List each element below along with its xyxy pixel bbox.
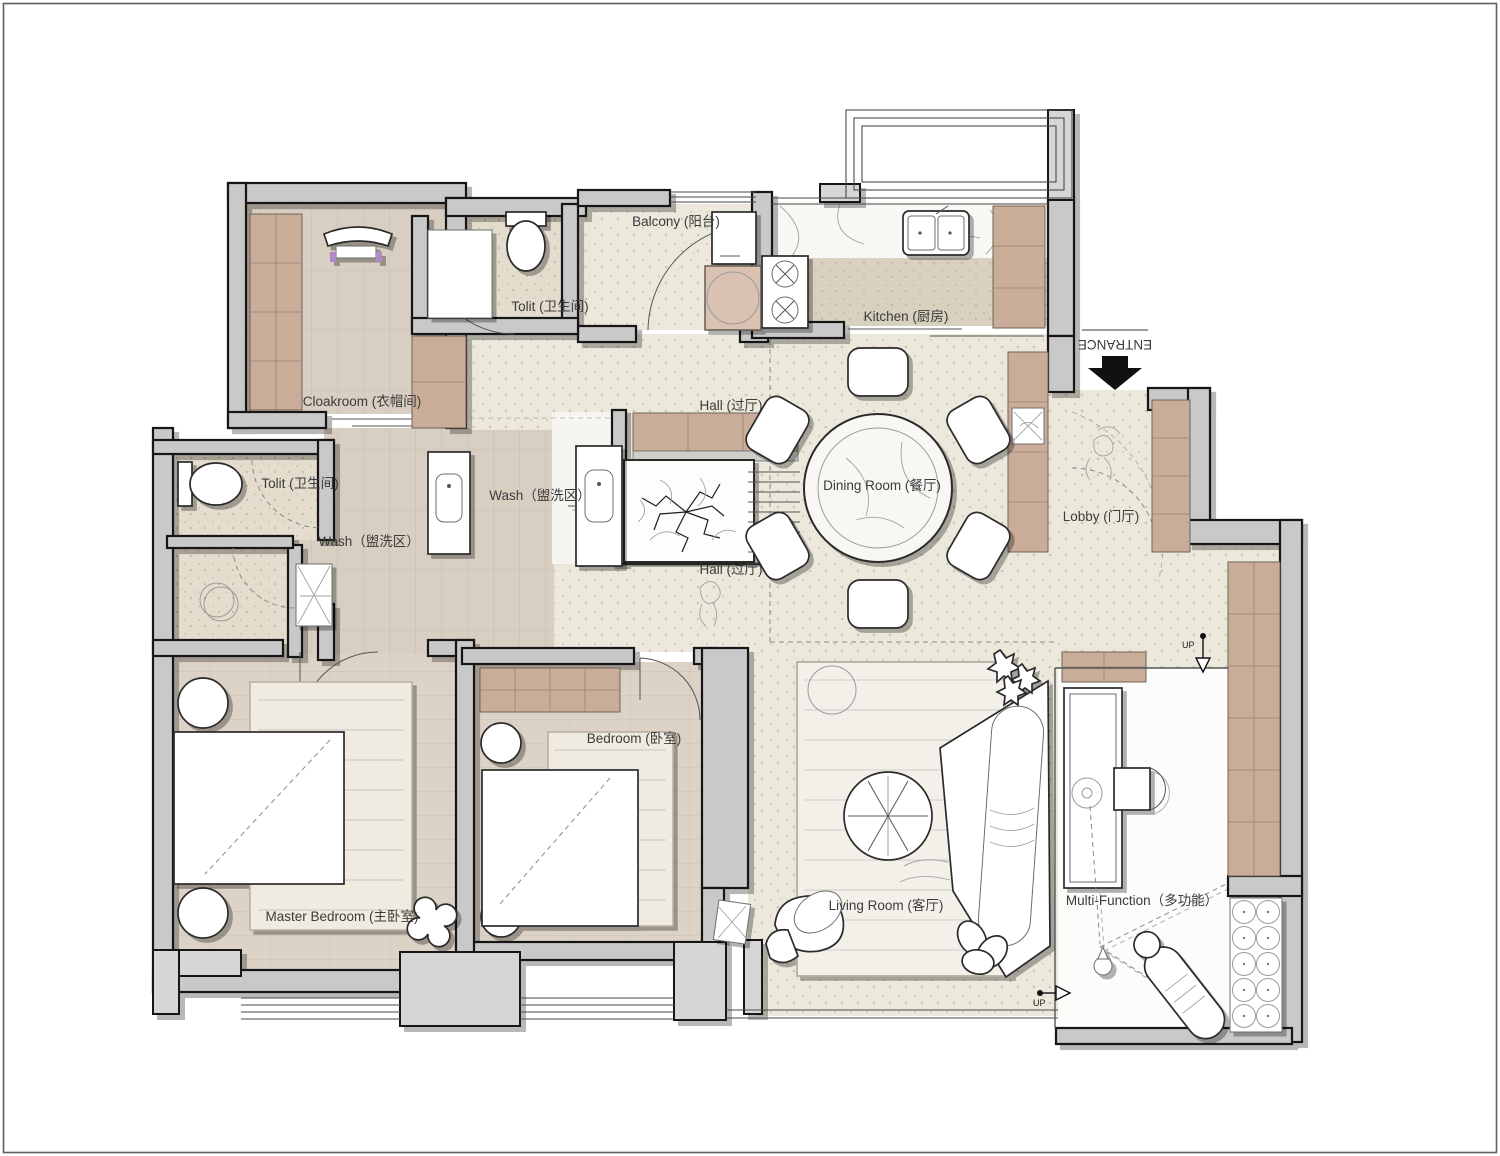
living-room-set — [766, 650, 1050, 977]
master-bed — [174, 732, 344, 884]
bedroom-bed — [482, 770, 638, 926]
lobby-shoe-cabinet — [1152, 400, 1190, 552]
wash-left-vanity — [428, 452, 470, 554]
enclosed-balcony-glazing — [846, 110, 1072, 198]
floor-plan-drawing: ENTRANCE UP UP Balcony (阳台) Tolit (卫生间) … — [0, 0, 1500, 1156]
tolit-left-label: Tolit (卫生间) — [261, 476, 338, 491]
wash-left-label: Wash（盥洗区） — [318, 534, 420, 549]
hall-cabinet-upper — [412, 336, 466, 428]
tolit-top-toilet — [506, 212, 546, 271]
balcony-window — [670, 192, 756, 202]
wash-center-label: Wash（盥洗区） — [489, 488, 591, 503]
cloakroom-wardrobe — [250, 214, 302, 410]
dining-chair — [848, 348, 908, 396]
up-top-label: UP — [1182, 640, 1195, 650]
wash-center-vanity — [568, 446, 622, 566]
floor-plan-page: ENTRANCE UP UP Balcony (阳台) Tolit (卫生间) … — [0, 0, 1500, 1156]
dining-room-label: Dining Room (餐厅) — [823, 478, 941, 493]
entrance-label: ENTRANCE — [1078, 337, 1152, 352]
tolit-left-toilet — [178, 462, 242, 506]
wine-rack — [1230, 898, 1282, 1032]
tolit-top-label: Tolit (卫生间) — [511, 299, 588, 314]
nightstand — [178, 888, 228, 938]
entrance-arrow — [1088, 356, 1142, 390]
living-room-label: Living Room (客厅) — [829, 897, 944, 913]
right-storage-cabinet — [1228, 562, 1280, 876]
entrance-marker: ENTRANCE — [1078, 330, 1152, 390]
shower-floor — [173, 548, 291, 654]
dining-side-cabinet — [1008, 352, 1048, 552]
multi-function-label: Multi-Function（多功能） — [1066, 892, 1218, 908]
wash-center-floor — [468, 430, 554, 660]
balcony-label: Balcony (阳台) — [632, 214, 720, 229]
bay-window-master — [241, 998, 400, 1019]
hall-lower-label: Hall (过厅) — [700, 562, 763, 577]
cloakroom-label: Cloakroom (衣帽间) — [303, 394, 422, 409]
master-bedroom-label: Master Bedroom (主卧室) — [265, 908, 418, 924]
wall-mirror — [713, 900, 750, 944]
washing-machine — [705, 266, 761, 330]
kitchen-label: Kitchen (厨房) — [864, 309, 949, 324]
kitchen-sink — [903, 206, 969, 255]
multi-function-wall-cabinet — [1062, 652, 1146, 682]
bedroom-label: Bedroom (卧室) — [587, 730, 682, 746]
bedroom-wardrobe — [480, 668, 620, 712]
coffee-table — [844, 772, 932, 860]
nightstand — [178, 678, 228, 728]
kitchen-tall-cabinet — [993, 206, 1045, 328]
kitchen-stove — [762, 256, 808, 328]
dining-chair — [848, 580, 908, 628]
up-bottom-label: UP — [1033, 998, 1046, 1008]
bay-window-bedroom — [520, 998, 674, 1019]
wash-left-mirror — [296, 564, 332, 626]
hall-upper-label: Hall (过厅) — [700, 398, 763, 413]
tolit-top-shower — [428, 230, 492, 318]
nightstand — [481, 723, 521, 763]
lobby-label: Lobby (门厅) — [1063, 509, 1140, 524]
